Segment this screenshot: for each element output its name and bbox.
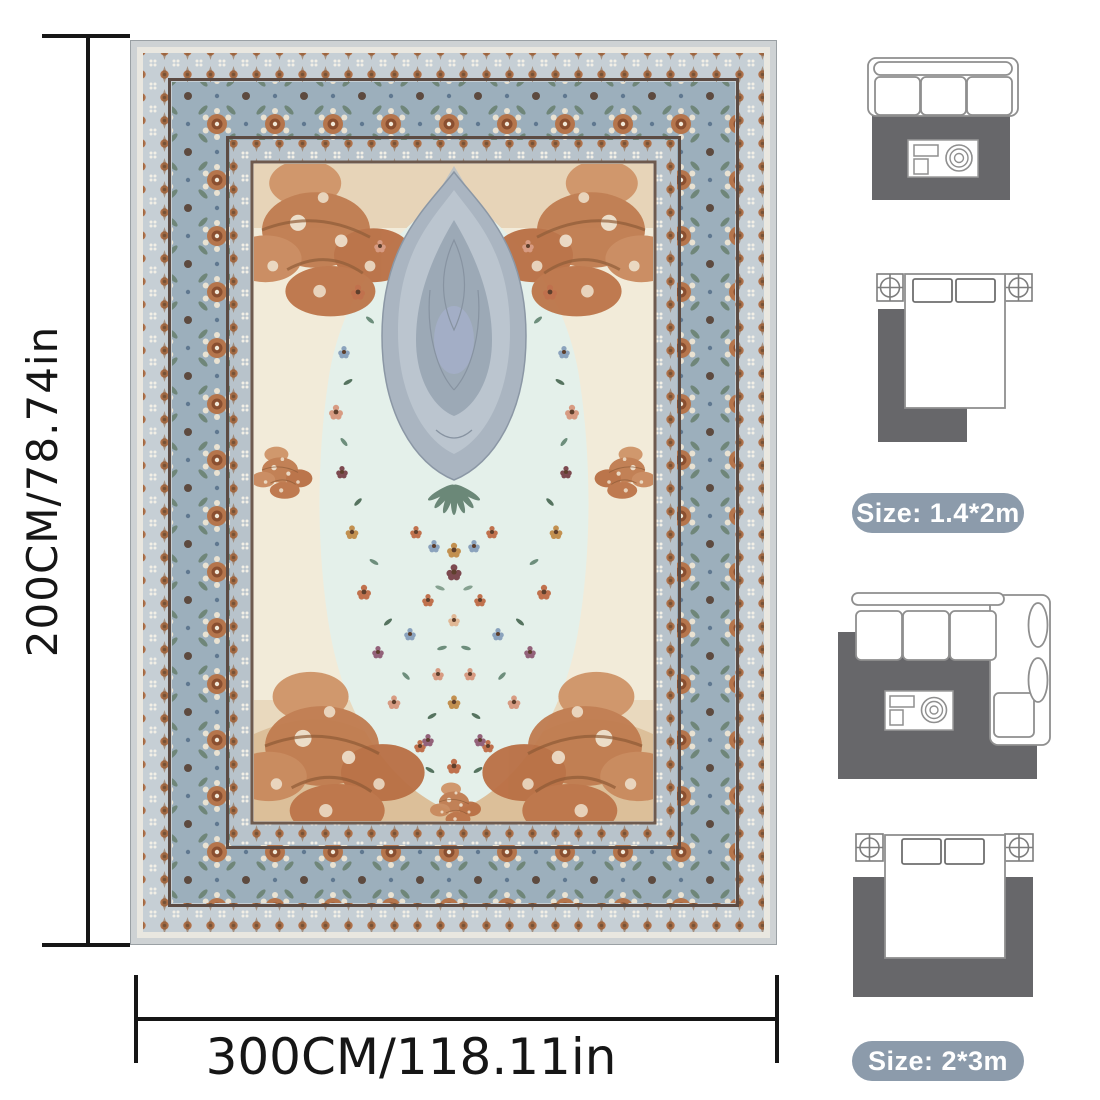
size-badge-2: Size: 2*3m <box>852 1041 1024 1081</box>
horizontal-dimension-label: 300CM/118.11in <box>111 1028 711 1086</box>
sectional-sofa-with-rug-diagram <box>836 585 1056 785</box>
pillow-icon <box>956 279 995 302</box>
nightstand-icon <box>1005 274 1032 301</box>
vertical-dimension-label-wrap: 200CM/78.74in <box>8 34 78 949</box>
pillow-icon <box>913 279 952 302</box>
pillow-icon <box>945 839 984 864</box>
vertical-dimension-label: 200CM/78.74in <box>19 326 68 657</box>
pillow-icon <box>1029 658 1048 702</box>
nightstand-icon <box>877 274 903 301</box>
nightstand-icon <box>1005 834 1033 861</box>
rug-product-size-guide-image: 200CM/78.74in 300CM/118.11in <box>0 0 1100 1100</box>
vertical-dimension-line <box>86 34 90 947</box>
horizontal-dimension-line <box>134 1017 779 1021</box>
sofa-with-rug-diagram <box>850 45 1040 200</box>
pillow-icon <box>1029 603 1048 647</box>
nightstand-icon <box>856 834 883 861</box>
pillow-icon <box>902 839 941 864</box>
coffee-table-icon <box>908 140 978 177</box>
sofa-icon <box>868 58 1018 116</box>
bed-with-large-rug-diagram <box>852 828 1037 1003</box>
bed-with-rug-diagram <box>855 270 1035 445</box>
coffee-table-icon <box>885 691 953 730</box>
horizontal-dimension-right-cap <box>775 975 779 1063</box>
rug-product-photo <box>130 40 777 945</box>
size-badge-1: Size: 1.4*2m <box>852 493 1024 533</box>
